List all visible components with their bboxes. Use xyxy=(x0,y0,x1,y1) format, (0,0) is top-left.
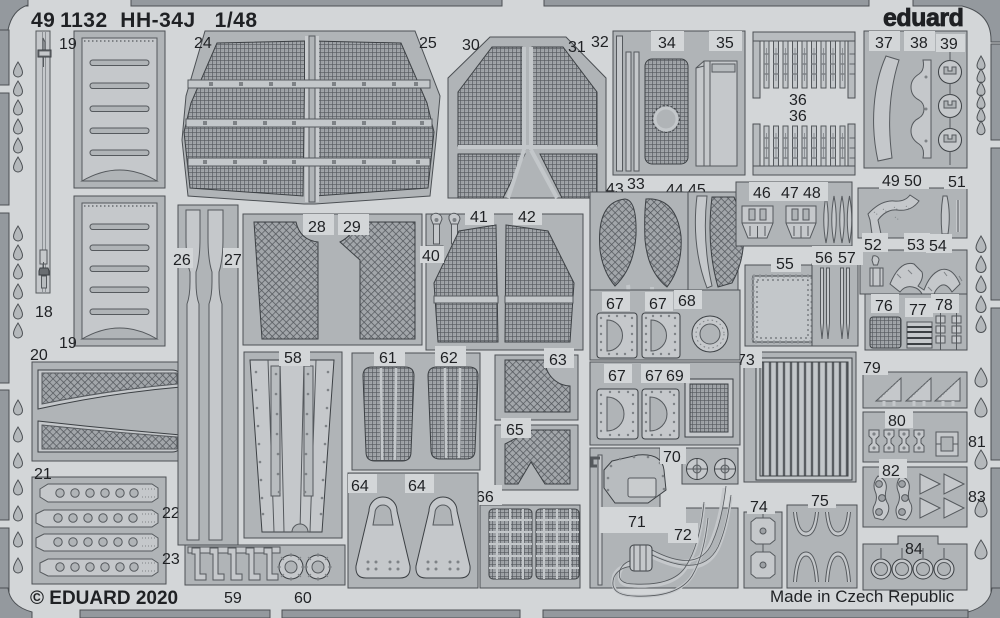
svg-text:71: 71 xyxy=(628,514,646,531)
svg-text:53: 53 xyxy=(907,237,925,254)
svg-text:70: 70 xyxy=(663,449,681,466)
svg-text:74: 74 xyxy=(750,499,768,516)
svg-text:49: 49 xyxy=(882,173,900,190)
svg-text:79: 79 xyxy=(863,360,881,377)
svg-text:© EDUARD 2020: © EDUARD 2020 xyxy=(30,588,178,609)
svg-text:49 1132 HH-34J 1/48: 49 1132 HH-34J 1/48 xyxy=(31,9,258,32)
svg-text:20: 20 xyxy=(30,347,48,364)
svg-text:28: 28 xyxy=(308,219,326,236)
svg-text:82: 82 xyxy=(882,463,900,480)
svg-text:38: 38 xyxy=(910,35,928,52)
svg-text:52: 52 xyxy=(864,237,882,254)
svg-text:40: 40 xyxy=(422,248,440,265)
svg-text:46: 46 xyxy=(753,185,771,202)
svg-text:24: 24 xyxy=(194,35,212,52)
svg-text:64: 64 xyxy=(408,478,426,495)
svg-text:78: 78 xyxy=(935,297,953,314)
svg-text:18: 18 xyxy=(35,304,53,321)
svg-text:19: 19 xyxy=(59,36,77,53)
svg-text:41: 41 xyxy=(470,209,488,226)
svg-text:37: 37 xyxy=(875,35,893,52)
svg-text:eduard: eduard xyxy=(883,4,963,32)
svg-text:23: 23 xyxy=(162,551,180,568)
svg-text:64: 64 xyxy=(351,478,369,495)
svg-text:66: 66 xyxy=(476,489,494,506)
svg-text:48: 48 xyxy=(803,185,821,202)
svg-text:34: 34 xyxy=(658,35,676,52)
svg-text:67: 67 xyxy=(606,296,624,313)
svg-text:21: 21 xyxy=(34,466,52,483)
svg-text:27: 27 xyxy=(224,252,242,269)
svg-text:81: 81 xyxy=(968,434,986,451)
svg-text:31: 31 xyxy=(568,39,586,56)
svg-text:51: 51 xyxy=(948,174,966,191)
svg-text:42: 42 xyxy=(518,209,536,226)
svg-text:39: 39 xyxy=(940,36,958,53)
svg-text:33: 33 xyxy=(627,176,645,193)
svg-text:32: 32 xyxy=(591,34,609,51)
svg-text:67: 67 xyxy=(645,368,663,385)
svg-text:36: 36 xyxy=(789,108,807,125)
svg-text:65: 65 xyxy=(506,422,524,439)
svg-text:30: 30 xyxy=(462,37,480,54)
svg-text:60: 60 xyxy=(294,590,312,607)
svg-text:22: 22 xyxy=(162,505,180,522)
svg-text:36: 36 xyxy=(789,92,807,109)
svg-text:57: 57 xyxy=(838,250,856,267)
svg-text:25: 25 xyxy=(419,35,437,52)
svg-text:69: 69 xyxy=(666,368,684,385)
svg-text:59: 59 xyxy=(224,590,242,607)
svg-text:76: 76 xyxy=(875,298,893,315)
svg-text:35: 35 xyxy=(716,35,734,52)
svg-text:19: 19 xyxy=(59,335,77,352)
svg-text:67: 67 xyxy=(608,368,626,385)
svg-text:77: 77 xyxy=(909,302,927,319)
svg-text:63: 63 xyxy=(549,352,567,369)
svg-text:29: 29 xyxy=(343,219,361,236)
svg-text:58: 58 xyxy=(284,350,302,367)
svg-text:75: 75 xyxy=(811,493,829,510)
svg-text:68: 68 xyxy=(678,293,696,310)
svg-text:47: 47 xyxy=(781,185,799,202)
svg-text:54: 54 xyxy=(929,238,947,255)
svg-text:67: 67 xyxy=(649,296,667,313)
svg-text:80: 80 xyxy=(888,413,906,430)
svg-text:56: 56 xyxy=(815,250,833,267)
svg-text:26: 26 xyxy=(173,252,191,269)
svg-text:72: 72 xyxy=(674,527,692,544)
svg-text:50: 50 xyxy=(904,173,922,190)
svg-text:83: 83 xyxy=(968,489,986,506)
svg-text:62: 62 xyxy=(440,350,458,367)
svg-text:61: 61 xyxy=(379,350,397,367)
svg-text:84: 84 xyxy=(905,541,923,558)
svg-text:55: 55 xyxy=(776,256,794,273)
